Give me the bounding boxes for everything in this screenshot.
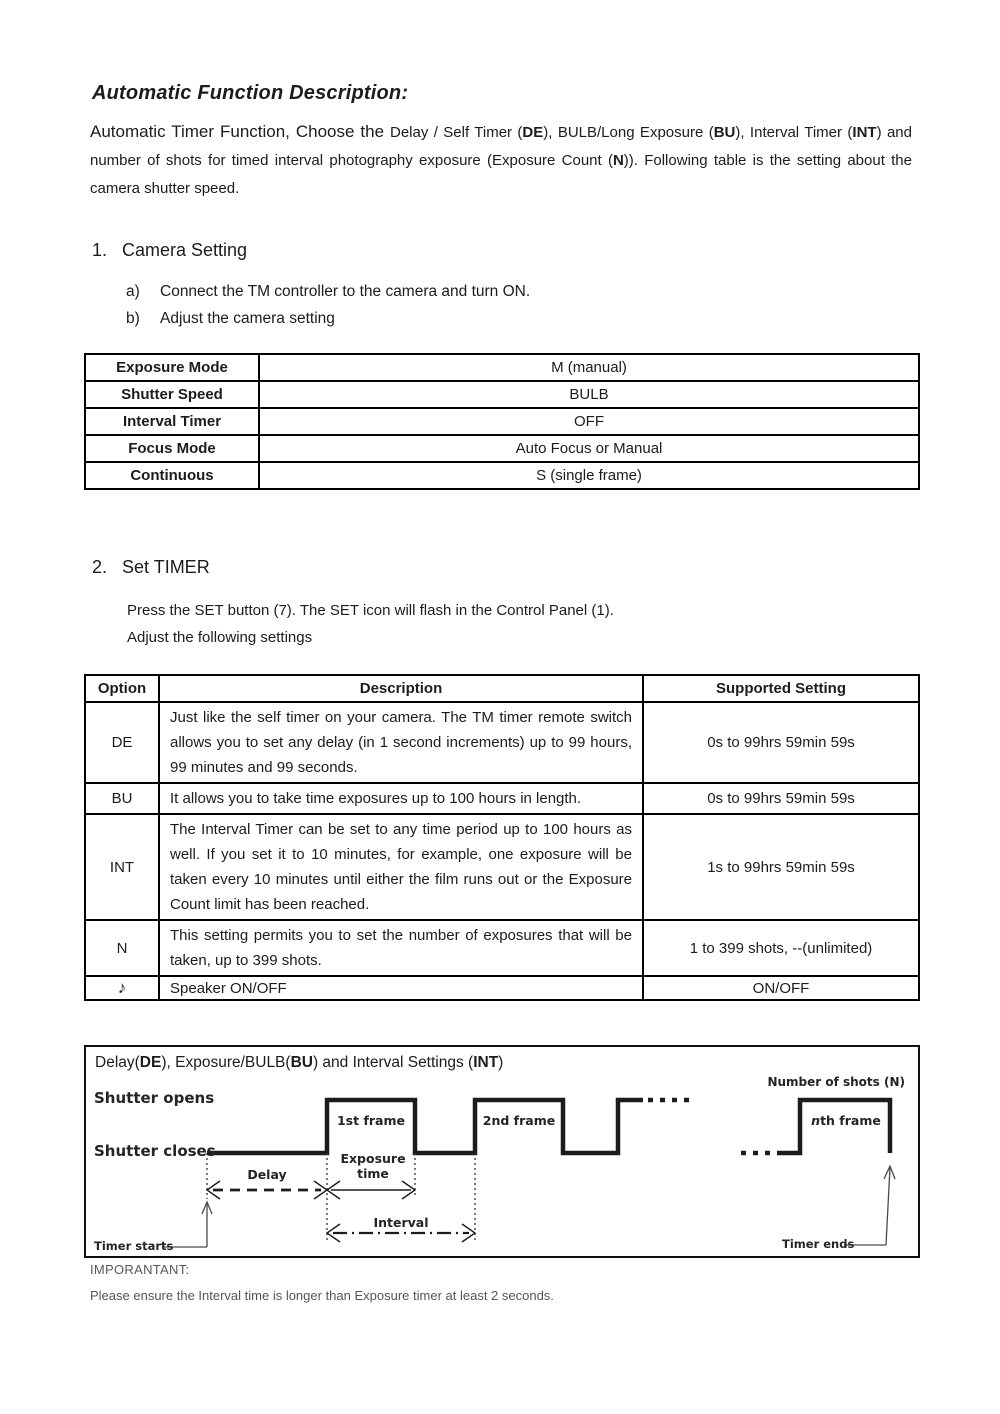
table-row: ContinuousS (single frame): [85, 462, 919, 489]
diagram-title-text: ): [498, 1054, 503, 1071]
document-page: Automatic Function Description: Automati…: [0, 0, 1000, 1414]
interval-label: Interval: [351, 1215, 451, 1230]
table-row: INT The Interval Timer can be set to any…: [85, 814, 919, 920]
section-number: 2.: [92, 557, 122, 578]
setting-value: S (single frame): [259, 462, 919, 489]
setting-label: Exposure Mode: [85, 354, 259, 381]
option-code: DE: [85, 702, 159, 783]
nth-frame-n: n: [811, 1113, 820, 1128]
table-row: Shutter SpeedBULB: [85, 381, 919, 408]
option-description: It allows you to take time exposures up …: [159, 783, 643, 814]
list-text: Connect the TM controller to the camera …: [160, 283, 530, 300]
diagram-title-bold-bu: BU: [291, 1054, 313, 1071]
instruction-line: Adjust the following settings: [127, 624, 614, 651]
intro-paragraph: Automatic Timer Function, Choose the Del…: [90, 118, 912, 203]
important-label: IMPORANTANT:: [90, 1262, 189, 1277]
section-heading-camera-setting: 1.Camera Setting: [92, 240, 247, 261]
option-code: N: [85, 920, 159, 976]
setting-value: Auto Focus or Manual: [259, 435, 919, 462]
setting-label: Interval Timer: [85, 408, 259, 435]
column-header-option: Option: [85, 675, 159, 702]
setting-label: Continuous: [85, 462, 259, 489]
intro-bold-n: N: [613, 152, 624, 169]
camera-setting-steps: a)Connect the TM controller to the camer…: [126, 278, 530, 332]
list-text: Adjust the camera setting: [160, 310, 335, 327]
timing-diagram: Delay(DE), Exposure/BULB(BU) and Interva…: [84, 1045, 920, 1258]
intro-lead: Automatic Timer Function, Choose the: [90, 122, 390, 141]
intro-text: Delay / Self Timer (: [390, 124, 522, 141]
option-description: Just like the self timer on your camera.…: [159, 702, 643, 783]
table-row: DE Just like the self timer on your came…: [85, 702, 919, 783]
second-frame-label: 2nd frame: [475, 1113, 563, 1128]
table-row: Focus ModeAuto Focus or Manual: [85, 435, 919, 462]
intro-bold-bu: BU: [714, 124, 736, 141]
timer-starts-label: Timer starts: [94, 1239, 173, 1253]
number-of-shots-label: Number of shots (N): [767, 1075, 905, 1089]
option-setting: 1s to 99hrs 59min 59s: [643, 814, 919, 920]
column-header-supported-setting: Supported Setting: [643, 675, 919, 702]
exposure-word: Exposure: [331, 1151, 415, 1166]
diagram-title-text: Delay(: [95, 1054, 140, 1071]
shots-text: Number of shots (: [767, 1075, 889, 1089]
list-marker: a): [126, 278, 160, 305]
section-number: 1.: [92, 240, 122, 261]
diagram-title-text: ), Exposure/BULB(: [161, 1054, 290, 1071]
intro-bold-int: INT: [852, 124, 876, 141]
shots-bold-n: N: [889, 1075, 899, 1089]
table-row: BU It allows you to take time exposures …: [85, 783, 919, 814]
list-marker: b): [126, 305, 160, 332]
time-word: time: [331, 1166, 415, 1181]
setting-value: OFF: [259, 408, 919, 435]
table-row: N This setting permits you to set the nu…: [85, 920, 919, 976]
shutter-closes-label: Shutter closes: [94, 1142, 216, 1160]
setting-label: Focus Mode: [85, 435, 259, 462]
option-description: Speaker ON/OFF: [159, 976, 643, 1000]
diagram-title-bold-int: INT: [473, 1054, 498, 1071]
option-code: INT: [85, 814, 159, 920]
nth-frame-label: nth frame: [800, 1113, 892, 1128]
table-row: Exposure ModeM (manual): [85, 354, 919, 381]
diagram-title-text: ) and Interval Settings (: [313, 1054, 473, 1071]
first-frame-label: 1st frame: [327, 1113, 415, 1128]
instruction-line: Press the SET button (7). The SET icon w…: [127, 597, 614, 624]
page-title: Automatic Function Description:: [92, 82, 408, 105]
table-header-row: Option Description Supported Setting: [85, 675, 919, 702]
section-label: Set TIMER: [122, 557, 210, 577]
diagram-title: Delay(DE), Exposure/BULB(BU) and Interva…: [95, 1054, 503, 1072]
section-label: Camera Setting: [122, 240, 247, 260]
shutter-opens-label: Shutter opens: [94, 1089, 214, 1107]
column-header-description: Description: [159, 675, 643, 702]
timer-ends-label: Timer ends: [782, 1237, 854, 1251]
option-setting: ON/OFF: [643, 976, 919, 1000]
section-heading-set-timer: 2.Set TIMER: [92, 557, 210, 578]
exposure-time-label: Exposure time: [331, 1151, 415, 1181]
important-note: Please ensure the Interval time is longe…: [90, 1288, 554, 1303]
nth-frame-text: th frame: [820, 1113, 881, 1128]
option-code: BU: [85, 783, 159, 814]
option-description: This setting permits you to set the numb…: [159, 920, 643, 976]
shots-text: ): [900, 1075, 905, 1089]
table-row: ♪ Speaker ON/OFF ON/OFF: [85, 976, 919, 1000]
setting-value: M (manual): [259, 354, 919, 381]
option-setting: 0s to 99hrs 59min 59s: [643, 783, 919, 814]
setting-label: Shutter Speed: [85, 381, 259, 408]
setting-value: BULB: [259, 381, 919, 408]
list-item: b)Adjust the camera setting: [126, 305, 530, 332]
intro-text: ), BULB/Long Exposure (: [543, 124, 713, 141]
delay-label: Delay: [227, 1167, 307, 1182]
option-description: The Interval Timer can be set to any tim…: [159, 814, 643, 920]
intro-bold-de: DE: [522, 124, 543, 141]
option-setting: 0s to 99hrs 59min 59s: [643, 702, 919, 783]
table-row: Interval TimerOFF: [85, 408, 919, 435]
speaker-note-icon: ♪: [85, 976, 159, 1000]
set-timer-instructions: Press the SET button (7). The SET icon w…: [127, 597, 614, 651]
diagram-title-bold-de: DE: [140, 1054, 162, 1071]
list-item: a)Connect the TM controller to the camer…: [126, 278, 530, 305]
intro-text: ), Interval Timer (: [735, 124, 852, 141]
option-setting: 1 to 399 shots, --(unlimited): [643, 920, 919, 976]
camera-settings-table: Exposure ModeM (manual) Shutter SpeedBUL…: [84, 353, 920, 490]
timer-options-table: Option Description Supported Setting DE …: [84, 674, 920, 1001]
